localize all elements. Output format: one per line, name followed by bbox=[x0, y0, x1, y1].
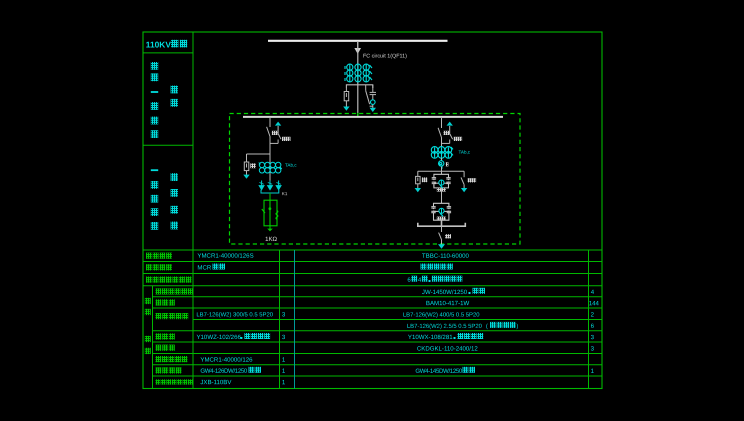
svg-text:TAb,c: TAb,c bbox=[285, 163, 297, 168]
svg-text:BAM10-417-1W: BAM10-417-1W bbox=[426, 300, 470, 307]
svg-text:3: 3 bbox=[282, 311, 286, 318]
svg-text:3: 3 bbox=[282, 334, 286, 341]
svg-text:(: ( bbox=[486, 323, 488, 330]
svg-text:GW4-126DW/1250: GW4-126DW/1250 bbox=[200, 368, 248, 375]
svg-text:FC circuit 1(QF11): FC circuit 1(QF11) bbox=[363, 54, 407, 60]
svg-text:3: 3 bbox=[591, 334, 595, 341]
svg-text:CKDGKL-110-2400/12: CKDGKL-110-2400/12 bbox=[417, 345, 478, 352]
svg-text:144: 144 bbox=[589, 300, 600, 307]
svg-text:4: 4 bbox=[418, 277, 422, 284]
svg-text:JXB-110BV: JXB-110BV bbox=[200, 379, 232, 386]
svg-text:110KV: 110KV bbox=[146, 39, 172, 49]
svg-text:TAb,c: TAb,c bbox=[458, 150, 470, 155]
svg-text:MCR: MCR bbox=[197, 264, 211, 271]
svg-text:2: 2 bbox=[591, 312, 595, 319]
svg-text:LB7-126(W2) 2.5/5 0.5 5P20: LB7-126(W2) 2.5/5 0.5 5P20 bbox=[407, 323, 483, 330]
svg-text:): ) bbox=[516, 323, 518, 330]
svg-text:LB7-126(W2) 300/5 0.5 5P20: LB7-126(W2) 300/5 0.5 5P20 bbox=[196, 311, 273, 318]
svg-text:GW4-145DW/1250: GW4-145DW/1250 bbox=[415, 368, 463, 375]
svg-text:1: 1 bbox=[282, 357, 286, 364]
svg-text:YMCR1-40000/126: YMCR1-40000/126 bbox=[200, 357, 253, 364]
svg-text:6: 6 bbox=[591, 323, 595, 330]
svg-text:1: 1 bbox=[591, 368, 595, 375]
svg-text:3: 3 bbox=[591, 346, 595, 353]
svg-text:JW-1450W/1250: JW-1450W/1250 bbox=[422, 289, 468, 296]
svg-text:K1: K1 bbox=[282, 191, 288, 196]
svg-text:6: 6 bbox=[407, 277, 411, 284]
svg-text:4: 4 bbox=[591, 289, 595, 296]
svg-text:1: 1 bbox=[282, 379, 286, 386]
svg-text:Y10WZ-102/266: Y10WZ-102/266 bbox=[196, 334, 241, 341]
svg-text:LB7-126(W2) 400/5 0.5 5P20: LB7-126(W2) 400/5 0.5 5P20 bbox=[403, 311, 480, 318]
svg-text:TBBC-110-60000: TBBC-110-60000 bbox=[422, 253, 470, 260]
svg-text:YMCR1-40000/126S: YMCR1-40000/126S bbox=[197, 253, 253, 260]
svg-text:Y10WX-108/281: Y10WX-108/281 bbox=[408, 334, 453, 341]
svg-text:1: 1 bbox=[282, 368, 286, 375]
svg-text:1KΩ: 1KΩ bbox=[265, 236, 277, 243]
